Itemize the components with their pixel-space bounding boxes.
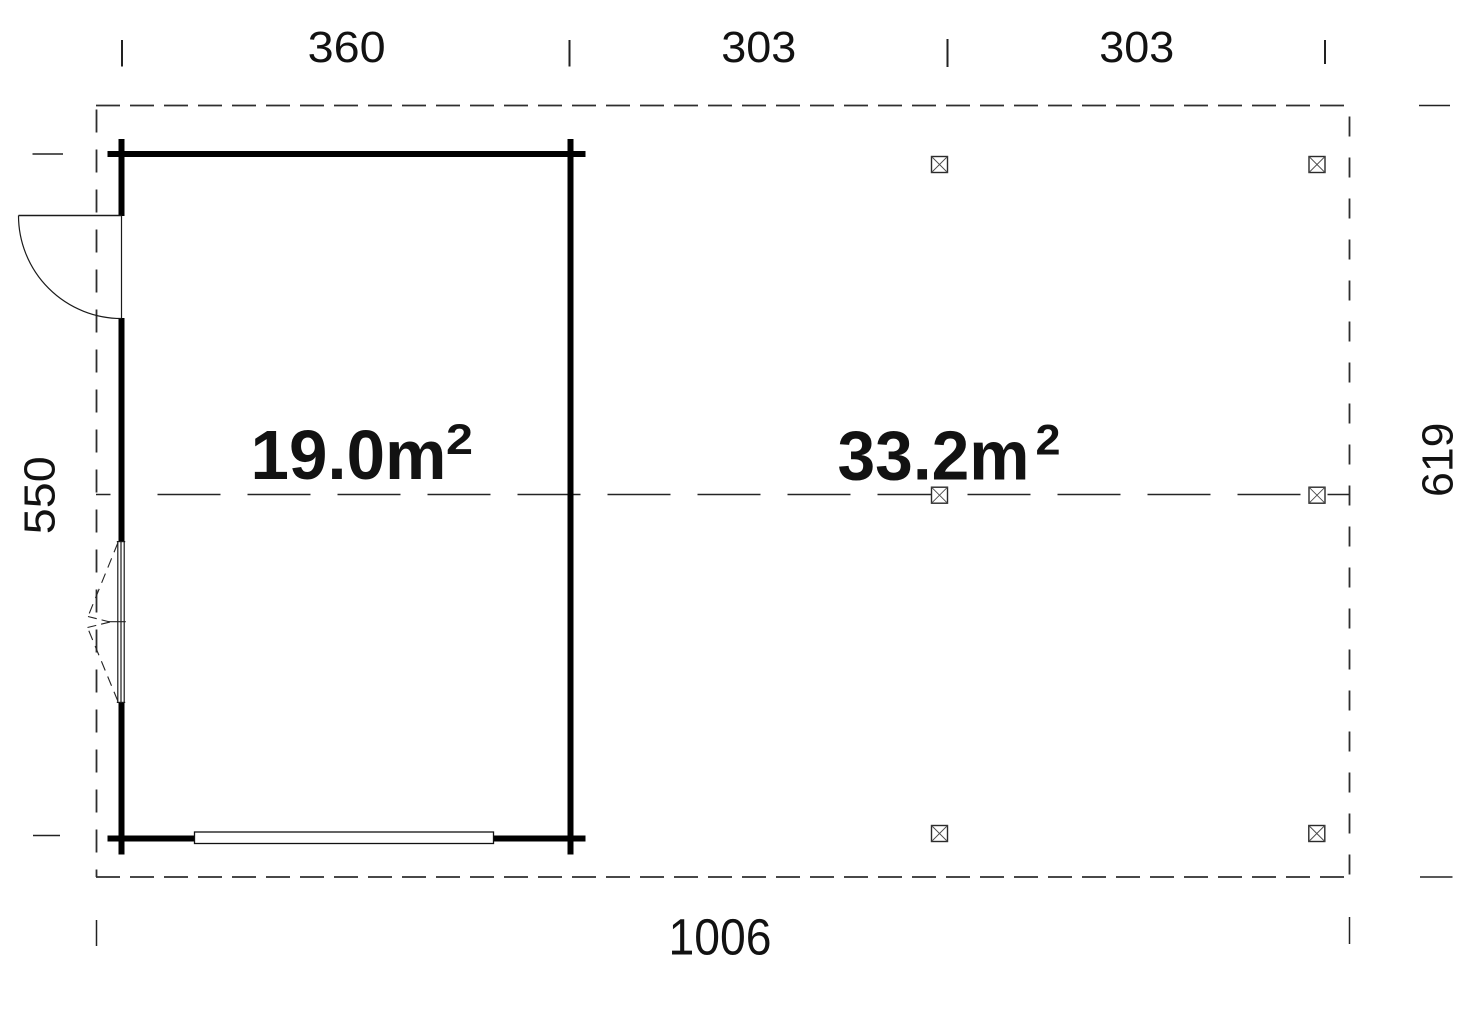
svg-text:19.0m: 19.0m	[251, 416, 447, 494]
svg-text:550: 550	[17, 456, 65, 534]
svg-text:2: 2	[446, 416, 473, 464]
svg-text:33.2m: 33.2m	[838, 417, 1030, 495]
svg-text:2: 2	[1036, 417, 1061, 465]
svg-text:619: 619	[1414, 423, 1462, 497]
svg-text:303: 303	[721, 24, 796, 72]
svg-text:360: 360	[308, 24, 386, 72]
svg-text:1006: 1006	[669, 908, 772, 965]
svg-text:303: 303	[1099, 24, 1174, 72]
